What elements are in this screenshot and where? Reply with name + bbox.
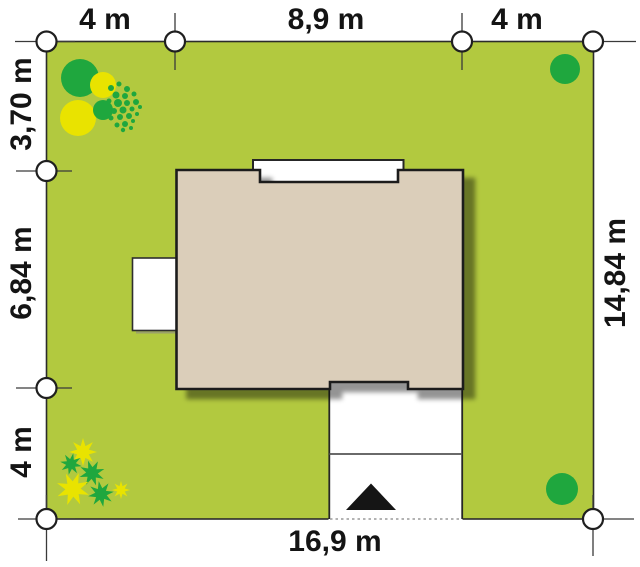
dim-top-left-label: 4 m — [79, 5, 131, 35]
driveway-surface — [329, 382, 463, 521]
dim-left-middle-label: 6,84 m — [7, 226, 37, 319]
boundary-marker — [37, 32, 57, 52]
left-annex — [133, 258, 178, 331]
boundary-marker — [583, 32, 603, 52]
tree-bottom-right-icon — [546, 473, 578, 505]
house-footprint — [177, 170, 464, 389]
dim-left-upper-label: 3,70 m — [7, 57, 37, 150]
dim-right-label: 14,84 m — [601, 218, 631, 328]
boundary-marker — [37, 161, 57, 181]
dim-bottom-label: 16,9 m — [288, 527, 381, 557]
driveway — [329, 382, 463, 521]
dim-top-center-label: 8,9 m — [288, 5, 365, 35]
boundary-marker — [452, 32, 472, 52]
bush-icon — [60, 100, 96, 136]
bush-star-icon — [112, 481, 130, 499]
terrace — [253, 160, 404, 182]
boundary-marker — [165, 32, 185, 52]
site-plan-canvas — [0, 0, 640, 567]
dim-top-right-label: 4 m — [491, 5, 543, 35]
tree-top-right-icon — [550, 54, 580, 84]
bush-icon — [90, 72, 116, 98]
dim-left-lower-label: 4 m — [7, 426, 37, 478]
site-plan: 4 m 8,9 m 4 m 3,70 m 6,84 m 4 m 14,84 m … — [0, 0, 640, 567]
boundary-marker — [37, 509, 57, 529]
boundary-marker — [37, 378, 57, 398]
boundary-marker — [583, 509, 603, 529]
